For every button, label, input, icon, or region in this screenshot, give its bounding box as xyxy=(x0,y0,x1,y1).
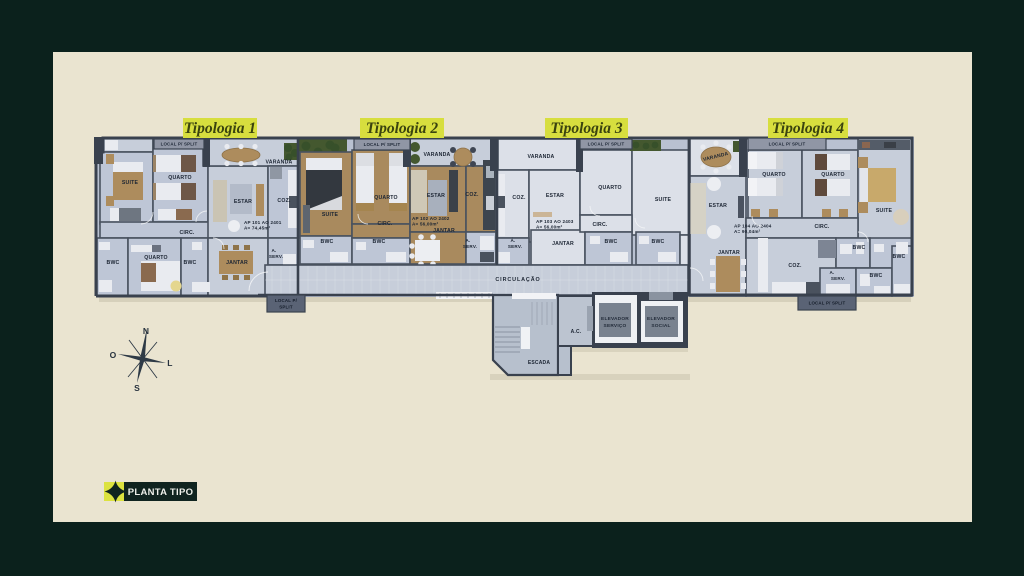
svg-text:Tipologia 2: Tipologia 2 xyxy=(366,120,438,137)
svg-text:BWC: BWC xyxy=(321,239,334,245)
svg-text:SUITE: SUITE xyxy=(876,208,893,214)
svg-text:BWC: BWC xyxy=(373,239,386,245)
svg-text:ESTAR: ESTAR xyxy=(427,193,445,199)
svg-text:PLANTA TIPO: PLANTA TIPO xyxy=(128,487,194,498)
svg-text:SPLIT: SPLIT xyxy=(279,304,293,309)
svg-text:N: N xyxy=(143,326,149,336)
svg-text:JANTAR: JANTAR xyxy=(226,260,248,266)
svg-text:AP 101 AO 2401: AP 101 AO 2401 xyxy=(244,220,282,225)
svg-text:JANTAR: JANTAR xyxy=(433,228,455,234)
svg-text:CIRC.: CIRC. xyxy=(592,222,607,228)
svg-text:COZ.: COZ. xyxy=(277,198,291,204)
svg-text:A= 56,00m²: A= 56,00m² xyxy=(412,222,439,227)
svg-text:LOCAL P/ SPLIT: LOCAL P/ SPLIT xyxy=(161,142,198,147)
svg-text:LOCAL P/ SPLIT: LOCAL P/ SPLIT xyxy=(809,301,846,306)
svg-text:A.: A. xyxy=(466,238,471,243)
svg-text:CIRC.: CIRC. xyxy=(179,230,194,236)
svg-text:QUARTO: QUARTO xyxy=(144,255,168,261)
svg-text:ELEVADOR: ELEVADOR xyxy=(601,316,629,322)
svg-text:CIRC.: CIRC. xyxy=(377,221,392,227)
svg-text:BWC: BWC xyxy=(107,260,120,266)
svg-text:SERV.: SERV. xyxy=(508,244,522,249)
svg-text:AP 104 AO 2404: AP 104 AO 2404 xyxy=(734,224,772,229)
svg-text:JANTAR: JANTAR xyxy=(552,241,574,247)
svg-text:A.: A. xyxy=(830,270,835,275)
svg-text:BWC: BWC xyxy=(652,239,665,245)
svg-text:AP 103 AO 2403: AP 103 AO 2403 xyxy=(536,219,574,224)
svg-text:CIRC.: CIRC. xyxy=(814,224,829,230)
svg-text:QUARTO: QUARTO xyxy=(374,195,398,201)
svg-text:SUITE: SUITE xyxy=(122,180,139,186)
svg-text:Tipologia 1: Tipologia 1 xyxy=(184,120,256,137)
svg-text:BWC: BWC xyxy=(184,260,197,266)
svg-text:SERV.: SERV. xyxy=(463,244,477,249)
svg-text:QUARTO: QUARTO xyxy=(598,185,622,191)
svg-text:AP 102 AO 2402: AP 102 AO 2402 xyxy=(412,216,450,221)
svg-text:BWC: BWC xyxy=(870,273,883,279)
svg-text:SERV.: SERV. xyxy=(831,276,845,281)
svg-text:Tipologia 3: Tipologia 3 xyxy=(550,120,622,137)
svg-text:ESCADA: ESCADA xyxy=(528,360,551,366)
svg-text:QUARTO: QUARTO xyxy=(821,172,845,178)
svg-text:A= 56,00m²: A= 56,00m² xyxy=(536,225,563,230)
svg-text:S: S xyxy=(134,383,140,393)
svg-text:O: O xyxy=(110,350,117,360)
svg-text:ESTAR: ESTAR xyxy=(546,193,564,199)
svg-text:Tipologia 4: Tipologia 4 xyxy=(772,120,844,137)
svg-text:ELEVADOR: ELEVADOR xyxy=(647,316,675,322)
svg-text:A= 74,45m²: A= 74,45m² xyxy=(244,226,271,231)
svg-text:ESTAR: ESTAR xyxy=(709,203,727,209)
svg-text:BWC: BWC xyxy=(893,254,906,260)
svg-text:SUITE: SUITE xyxy=(322,212,339,218)
svg-text:COZ.: COZ. xyxy=(788,263,802,269)
svg-text:VARANDA: VARANDA xyxy=(528,154,555,160)
svg-text:BWC: BWC xyxy=(605,239,618,245)
svg-text:VARANDA: VARANDA xyxy=(424,152,451,158)
svg-text:LOCAL P/ SPLIT: LOCAL P/ SPLIT xyxy=(769,142,806,147)
svg-text:A= 90,04m²: A= 90,04m² xyxy=(734,229,761,234)
svg-text:A.: A. xyxy=(272,248,277,253)
svg-text:SUITE: SUITE xyxy=(655,197,672,203)
svg-text:LOCAL P/ SPLIT: LOCAL P/ SPLIT xyxy=(588,142,625,147)
svg-text:CIRCULAÇÃO: CIRCULAÇÃO xyxy=(495,276,540,283)
svg-text:LOCAL P/ SPLIT: LOCAL P/ SPLIT xyxy=(364,142,401,147)
svg-text:VARANDA: VARANDA xyxy=(266,160,293,166)
svg-text:L: L xyxy=(167,358,172,368)
svg-text:SOCIAL: SOCIAL xyxy=(651,323,670,329)
svg-text:BWC: BWC xyxy=(853,245,866,251)
svg-text:COZ.: COZ. xyxy=(512,195,526,201)
svg-text:ESTAR: ESTAR xyxy=(234,199,252,205)
svg-text:SERVIÇO: SERVIÇO xyxy=(604,323,627,329)
svg-text:Á.: Á. xyxy=(511,237,516,243)
svg-text:SERV.: SERV. xyxy=(269,254,283,259)
svg-text:QUARTO: QUARTO xyxy=(168,175,192,181)
svg-text:QUARTO: QUARTO xyxy=(762,172,786,178)
svg-text:COZ.: COZ. xyxy=(465,192,479,198)
svg-text:JANTAR: JANTAR xyxy=(718,250,740,256)
svg-text:A.C.: A.C. xyxy=(571,329,582,335)
svg-text:LOCAL P/: LOCAL P/ xyxy=(275,298,298,303)
